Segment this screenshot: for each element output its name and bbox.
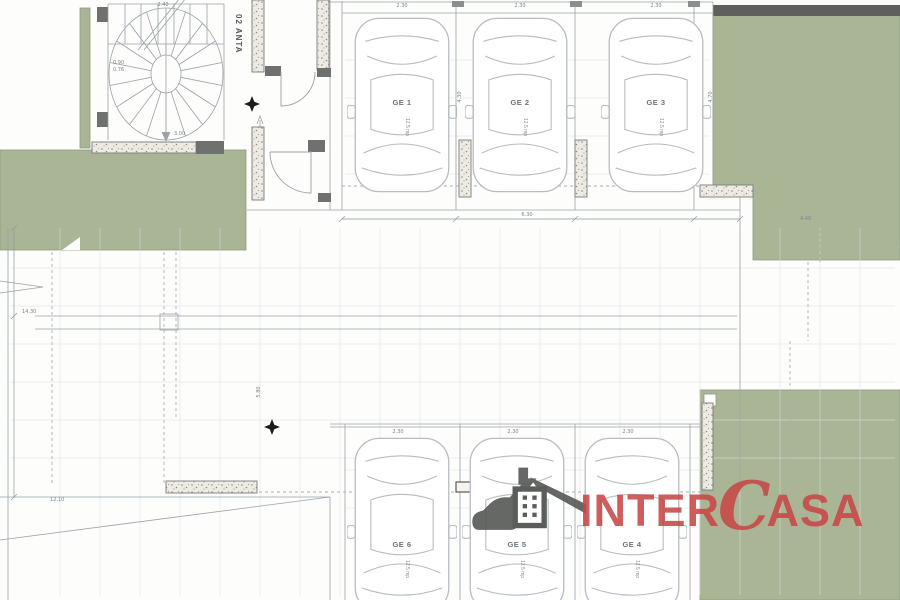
dim-mid-vertical: 5.80 <box>256 386 262 397</box>
spiral-staircase <box>108 0 224 141</box>
stair-run-dim: 2.40 <box>157 2 168 8</box>
grass-mid-left <box>0 150 246 250</box>
dim-width-ge6: 2.30 <box>392 429 403 435</box>
stair-riser-b: 0.76 <box>113 67 124 73</box>
door-arc-lower <box>270 152 311 193</box>
lamp-star-icon <box>244 96 260 112</box>
doors <box>270 72 315 193</box>
space-area-ge6: 12.5 mp <box>404 560 410 578</box>
grass-areas <box>0 5 900 600</box>
dim-aisle: 6.30 <box>521 212 532 218</box>
stair-width-dim: 3.00 <box>174 131 185 137</box>
car-ge6 <box>347 438 457 600</box>
room-label: 02 ANTA <box>234 14 243 53</box>
space-label-ge4: GE 4 <box>622 540 641 549</box>
space-label-ge6: GE 6 <box>392 540 411 549</box>
dim-bay-depth: 4.30 <box>457 91 463 102</box>
space-area-ge3: 12.5 mp <box>658 118 664 136</box>
dim-ramp: 12.10 <box>50 497 64 503</box>
space-area-ge5: 12.5 mp <box>519 560 525 578</box>
space-area-ge1: 12.5 mp <box>404 118 410 136</box>
car-ge5 <box>462 438 572 600</box>
dim-right-offset: 4.40 <box>800 216 811 222</box>
floor-plan-drawing: 02 ANTA GE 1 GE 2 GE 3 GE 6 GE 5 GE 4 12… <box>0 0 900 600</box>
space-label-ge2: GE 2 <box>510 98 529 107</box>
dim-width-ge4: 2.30 <box>622 429 633 435</box>
grass-top-right-dark-strip <box>713 5 900 16</box>
dim-width-ge3: 2.30 <box>650 3 661 9</box>
dim-width-ge5: 2.30 <box>507 429 518 435</box>
dim-right-depth: 4.70 <box>708 91 714 102</box>
lamp-star-icon <box>264 419 280 435</box>
grass-top-left-strip <box>80 8 90 148</box>
dim-width-ge2: 2.30 <box>514 3 525 9</box>
floor-plan-canvas: 02 ANTA GE 1 GE 2 GE 3 GE 6 GE 5 GE 4 12… <box>0 0 900 600</box>
grass-bottom-right <box>700 390 900 600</box>
grass-top-right <box>713 14 900 260</box>
car-ge4 <box>577 438 687 600</box>
stair-riser-a: 0.90 <box>113 60 124 66</box>
space-label-ge1: GE 1 <box>392 98 411 107</box>
space-area-ge2: 12.5 mp <box>522 118 528 136</box>
space-area-ge4: 12.5 mp <box>634 560 640 578</box>
space-label-ge5: GE 5 <box>507 540 526 549</box>
dim-width-ge1: 2.30 <box>396 3 407 9</box>
door-arc-upper <box>281 72 315 106</box>
space-label-ge3: GE 3 <box>646 98 665 107</box>
dim-left-height: 14.30 <box>22 309 36 315</box>
